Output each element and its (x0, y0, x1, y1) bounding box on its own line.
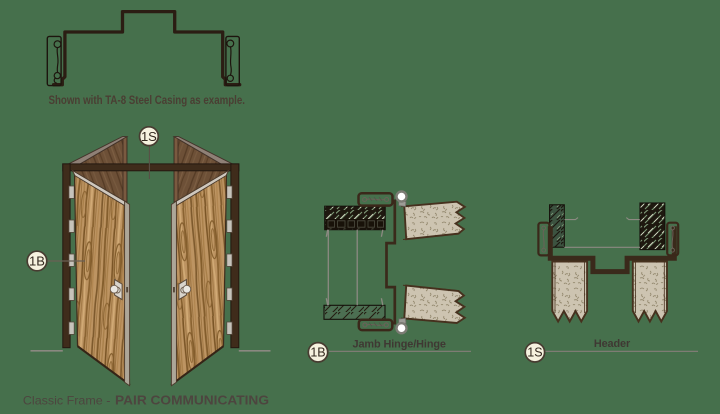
svg-text:1S: 1S (141, 129, 157, 144)
svg-text:PAIR COMMUNICATING: PAIR COMMUNICATING (115, 393, 269, 408)
svg-text:1B: 1B (310, 346, 325, 360)
svg-text:Classic Frame -: Classic Frame - (23, 394, 111, 408)
svg-text:Jamb Hinge/Hinge: Jamb Hinge/Hinge (352, 338, 445, 350)
svg-text:Shown with TA-8 Steel Casing a: Shown with TA-8 Steel Casing as example. (49, 93, 246, 107)
svg-text:1S: 1S (527, 346, 542, 360)
svg-text:1B: 1B (29, 254, 45, 269)
svg-text:Header: Header (594, 338, 631, 350)
